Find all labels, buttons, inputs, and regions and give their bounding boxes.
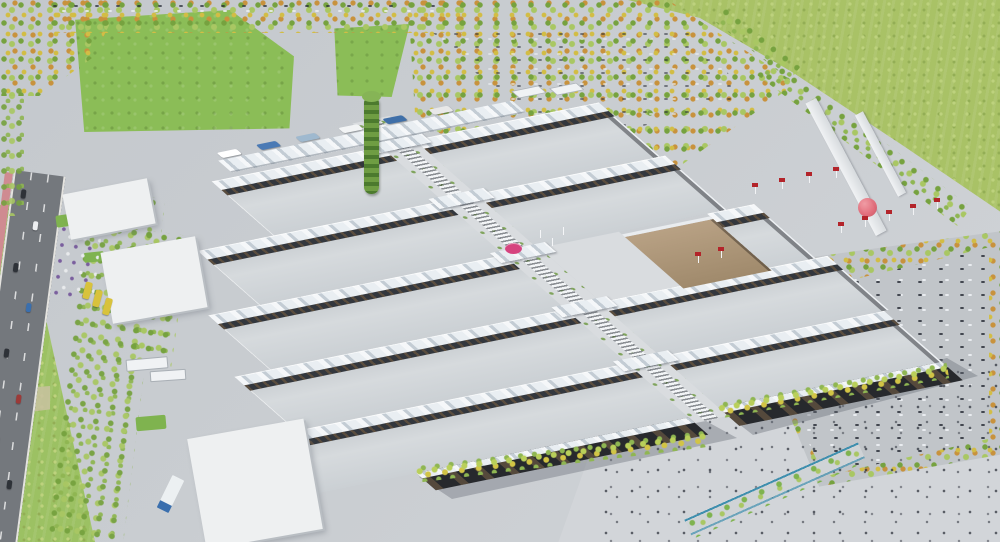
flag-pole: [552, 238, 553, 246]
pink-sphere-sculpture: [858, 198, 877, 217]
flag-banner-icon: [695, 252, 701, 262]
car: [6, 480, 12, 490]
roadside-trees-upper-west: [0, 86, 24, 216]
car: [3, 348, 9, 358]
car: [26, 303, 32, 313]
flag-banner-icon: [806, 172, 812, 182]
flag-banner-icon: [910, 204, 916, 214]
flag-banner-icon: [886, 210, 892, 220]
warehouse-building: [187, 419, 323, 542]
car: [16, 394, 22, 404]
car: [13, 263, 19, 273]
parked-vehicles-north: [50, 2, 450, 18]
flag-banner-icon: [752, 183, 758, 193]
flag-banner-icon: [838, 222, 844, 232]
flag-banner-icon: [779, 178, 785, 188]
flag-pole: [540, 230, 541, 238]
magenta-canopy: [505, 243, 522, 254]
vertical-garden-tower: [364, 96, 379, 194]
small-lawn-patch: [135, 415, 166, 432]
flag-banner-icon: [862, 216, 868, 226]
flag-banner-icon: [718, 247, 724, 257]
flag-banner-icon: [934, 198, 940, 208]
flag-pole: [563, 227, 564, 235]
flag-banner-icon: [833, 167, 839, 177]
aerial-rendering: [0, 0, 1000, 542]
